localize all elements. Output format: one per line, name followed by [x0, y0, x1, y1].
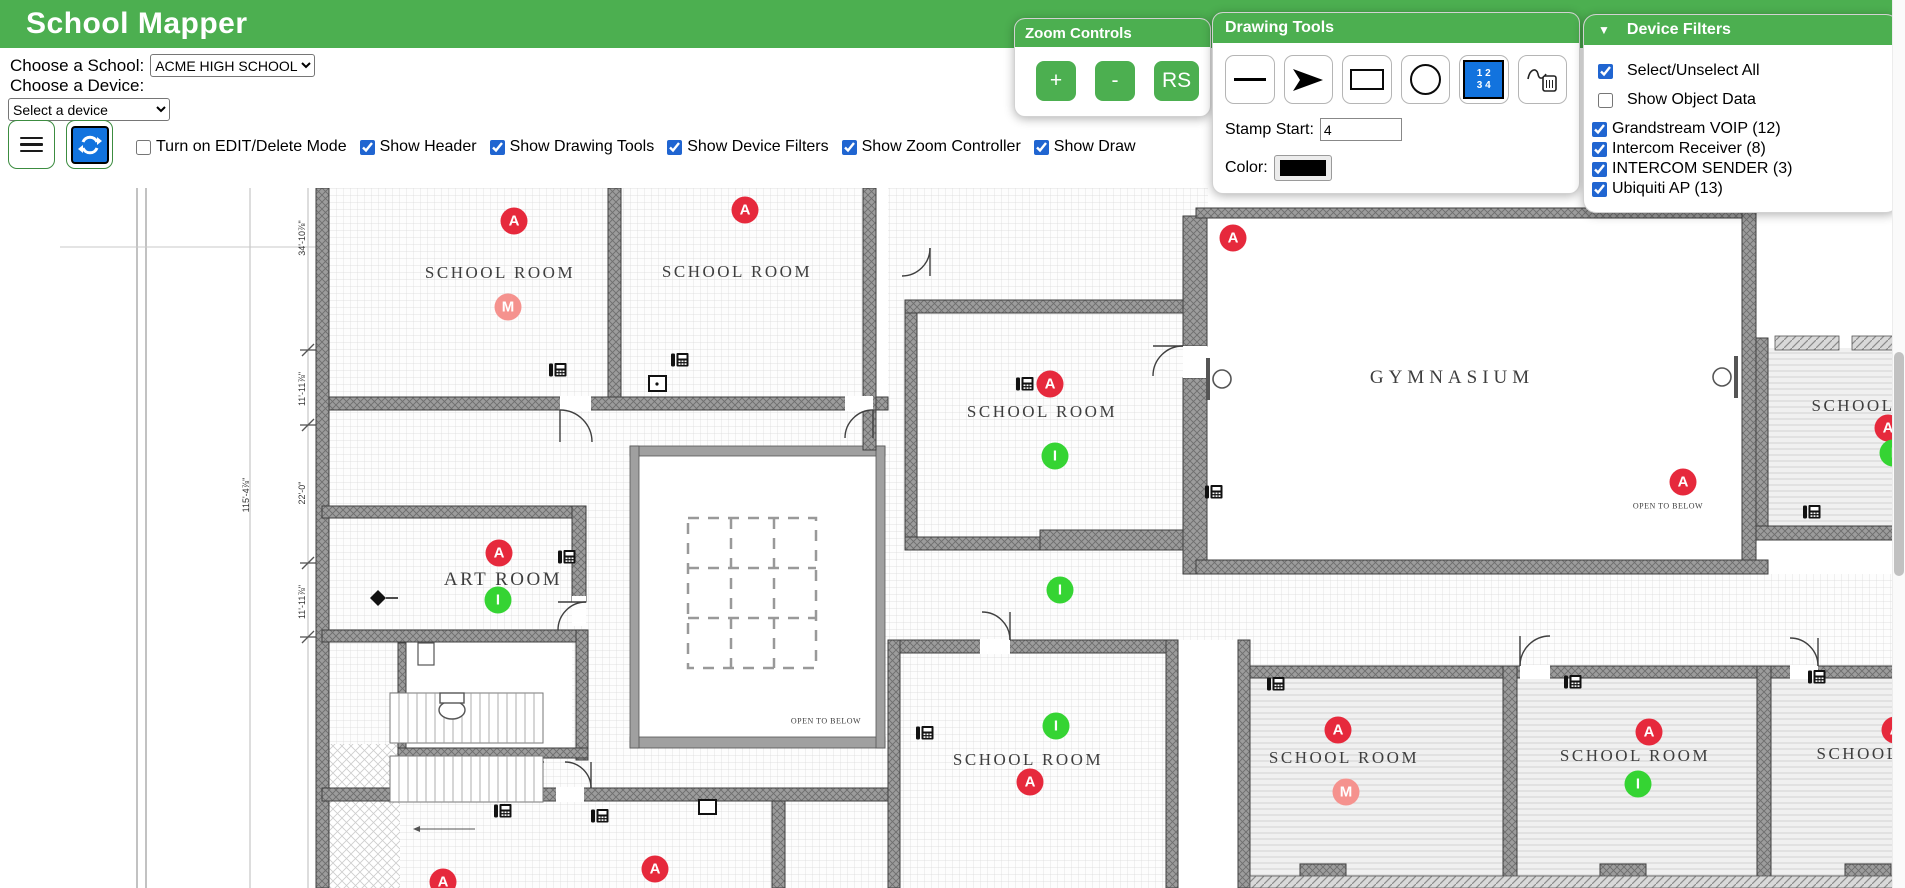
dimension-label: 34'-10⅞" — [297, 220, 307, 255]
toolbar-checkbox-show-zoom-controller[interactable]: Show Zoom Controller — [842, 138, 1021, 156]
grandstream-voip-marker[interactable] — [671, 353, 690, 368]
toolbar-checkbox-show-drawing-tools[interactable]: Show Drawing Tools — [490, 138, 655, 156]
checkbox[interactable] — [667, 140, 682, 155]
room-label-gymnasium: GYMNASIUM — [1370, 367, 1534, 389]
color-label: Color: — [1225, 159, 1268, 177]
filter-checkbox-show-object-data[interactable]: Show Object Data — [1598, 91, 1890, 109]
refresh-button[interactable] — [66, 120, 113, 169]
room-label-open-to-below: OPEN TO BELOW — [1633, 502, 1703, 511]
ubiquiti-ap-marker[interactable]: A — [501, 208, 528, 235]
grandstream-voip-marker[interactable] — [558, 550, 577, 565]
ubiquiti-ap-marker[interactable]: A — [1636, 719, 1663, 746]
ubiquiti-ap-marker[interactable]: A — [1670, 469, 1697, 496]
ubiquiti-ap-marker[interactable]: A — [486, 540, 513, 567]
device-select[interactable]: Select a device — [8, 98, 170, 121]
intercom-receiver-marker[interactable]: I — [1042, 443, 1069, 470]
room-label-school-room: SCHOOL ROOM — [1560, 746, 1710, 766]
checkbox[interactable] — [136, 140, 151, 155]
zoom-in-button[interactable]: + — [1036, 61, 1076, 101]
toolbar-checkbox-show-device-filters[interactable]: Show Device Filters — [667, 138, 828, 156]
arrow-tool-button[interactable] — [1284, 55, 1334, 104]
toolbar-checkbox-show-header[interactable]: Show Header — [360, 138, 477, 156]
dimension-label: 11'-11⅞" — [297, 585, 307, 619]
collapse-icon[interactable]: ▼ — [1598, 23, 1610, 37]
school-select-row: Choose a School: ACME HIGH SCHOOL — [10, 54, 315, 77]
room-label-school-room: SCHOOL ROOM — [967, 402, 1117, 422]
device-filters-header: ▼ Device Filters — [1584, 15, 1898, 45]
checkbox[interactable] — [1592, 182, 1607, 197]
filter-checkbox-intercom-receiver-8[interactable]: Intercom Receiver (8) — [1592, 140, 1890, 158]
hamburger-icon — [20, 137, 43, 140]
hamburger-menu-button[interactable] — [8, 120, 55, 169]
dimension-label: 22'-0" — [297, 482, 307, 505]
intercom-sender-marker[interactable]: M — [495, 294, 522, 321]
ubiquiti-ap-marker[interactable]: A — [1325, 717, 1352, 744]
erase-drawing-icon — [1525, 64, 1559, 96]
checkbox[interactable] — [1592, 122, 1607, 137]
dimension-label: 11'-11⅞" — [297, 372, 307, 406]
color-row: Color: — [1225, 155, 1567, 181]
circle-tool-button[interactable] — [1401, 55, 1451, 104]
rectangle-icon — [1350, 69, 1384, 90]
device-filters-title: Device Filters — [1627, 21, 1731, 39]
checkbox[interactable] — [842, 140, 857, 155]
filter-checkbox-ubiquiti-ap-13[interactable]: Ubiquiti AP (13) — [1592, 180, 1890, 198]
dimension-label: 115'-4⅞" — [241, 478, 251, 513]
drawing-tools-header: Drawing Tools — [1213, 13, 1579, 43]
scrollbar-thumb[interactable] — [1894, 352, 1904, 576]
grandstream-voip-marker[interactable] — [1808, 670, 1827, 685]
room-label-school: SCHOOL — [1816, 744, 1899, 764]
erase-drawing-tool-button[interactable] — [1518, 55, 1568, 104]
device-filters-panel: ▼ Device Filters Select/Unselect AllShow… — [1583, 14, 1899, 213]
grandstream-voip-marker[interactable] — [591, 809, 610, 824]
room-label-school-room: SCHOOL ROOM — [425, 263, 575, 283]
circle-icon — [1410, 64, 1441, 95]
school-select-label: Choose a School: — [10, 56, 144, 76]
checkbox[interactable] — [490, 140, 505, 155]
ubiquiti-ap-marker[interactable]: A — [430, 869, 457, 888]
filter-checkbox-intercom-sender-3[interactable]: INTERCOM SENDER (3) — [1592, 160, 1890, 178]
device-select-label: Choose a Device: — [10, 76, 144, 96]
line-icon — [1234, 78, 1266, 81]
rectangle-tool-button[interactable] — [1342, 55, 1392, 104]
tool-row: 1 23 4 — [1225, 55, 1567, 104]
room-label-school-room: SCHOOL ROOM — [662, 262, 812, 282]
zoom-reset-button[interactable]: RS — [1154, 61, 1199, 101]
grandstream-voip-marker[interactable] — [916, 726, 935, 741]
zoom-out-button[interactable]: - — [1095, 61, 1135, 101]
floor-plan-map[interactable]: SCHOOL ROOMSCHOOL ROOMSCHOOL ROOMGYMNASI… — [0, 188, 1905, 888]
intercom-receiver-marker[interactable]: I — [1625, 771, 1652, 798]
room-label-school: SCHOOL — [1811, 396, 1894, 416]
filter-checkbox-grandstream-voip-12[interactable]: Grandstream VOIP (12) — [1592, 120, 1890, 138]
school-select[interactable]: ACME HIGH SCHOOL — [150, 54, 315, 77]
device-filters-body: Select/Unselect AllShow Object DataGrand… — [1584, 45, 1898, 212]
toolbar-checkbox-turn-on-edit-delete-mode[interactable]: Turn on EDIT/Delete Mode — [136, 138, 347, 156]
toolbar-checkbox-show-draw[interactable]: Show Draw — [1034, 138, 1136, 156]
filter-checkbox-select-unselect-all[interactable]: Select/Unselect All — [1598, 62, 1890, 80]
refresh-icon — [71, 126, 109, 164]
ubiquiti-ap-marker[interactable]: A — [1220, 225, 1247, 252]
checkbox[interactable] — [1598, 64, 1613, 79]
ubiquiti-ap-marker[interactable]: A — [1037, 371, 1064, 398]
arrow-icon — [1291, 65, 1325, 95]
checkbox[interactable] — [360, 140, 375, 155]
room-label-open-to-below: OPEN TO BELOW — [791, 717, 861, 726]
ubiquiti-ap-marker[interactable]: A — [732, 197, 759, 224]
map-overlays: SCHOOL ROOMSCHOOL ROOMSCHOOL ROOMGYMNASI… — [0, 188, 1905, 888]
grandstream-voip-marker[interactable] — [1267, 677, 1286, 692]
drawing-tools-panel: Drawing Tools 1 23 4 Stamp Start: Color: — [1212, 12, 1580, 194]
number-stamp-icon: 1 23 4 — [1463, 60, 1504, 99]
checkbox[interactable] — [1034, 140, 1049, 155]
drawing-tools-title: Drawing Tools — [1225, 19, 1334, 37]
zoom-controls-panel: Zoom Controls +-RS — [1014, 18, 1211, 117]
intercom-receiver-marker[interactable]: I — [1047, 577, 1074, 604]
checkbox[interactable] — [1592, 162, 1607, 177]
stamp-start-label: Stamp Start: — [1225, 121, 1314, 139]
ubiquiti-ap-marker[interactable]: A — [1017, 769, 1044, 796]
drawing-tools-body: 1 23 4 Stamp Start: Color: — [1213, 43, 1579, 193]
checkbox[interactable] — [1592, 142, 1607, 157]
room-label-school-room: SCHOOL ROOM — [1269, 748, 1419, 768]
checkbox[interactable] — [1598, 93, 1613, 108]
color-chip — [1280, 160, 1326, 176]
ubiquiti-ap-marker[interactable]: A — [642, 856, 669, 883]
intercom-sender-marker[interactable]: M — [1333, 779, 1360, 806]
grandstream-voip-marker[interactable] — [549, 363, 568, 378]
room-label-school-room: SCHOOL ROOM — [953, 750, 1103, 770]
color-picker[interactable] — [1274, 155, 1332, 181]
zoom-controls-body: +-RS — [1015, 47, 1210, 116]
grandstream-voip-marker[interactable] — [1205, 485, 1224, 500]
grandstream-voip-marker[interactable] — [494, 804, 513, 819]
grandstream-voip-marker[interactable] — [1803, 505, 1822, 520]
grandstream-voip-marker[interactable] — [1016, 377, 1035, 392]
line-tool-button[interactable] — [1225, 55, 1275, 104]
vertical-scrollbar[interactable] — [1892, 0, 1905, 888]
number-stamp-tool-button[interactable]: 1 23 4 — [1459, 55, 1509, 104]
stamp-start-row: Stamp Start: — [1225, 118, 1567, 141]
grandstream-voip-marker[interactable] — [1564, 675, 1583, 690]
intercom-receiver-marker[interactable]: I — [1043, 713, 1070, 740]
intercom-receiver-marker[interactable]: I — [485, 587, 512, 614]
zoom-controls-title: Zoom Controls — [1025, 25, 1132, 42]
zoom-controls-header: Zoom Controls — [1015, 19, 1210, 47]
stamp-start-input[interactable] — [1320, 118, 1402, 141]
toolbar-checkboxes: Turn on EDIT/Delete ModeShow HeaderShow … — [136, 138, 1136, 156]
